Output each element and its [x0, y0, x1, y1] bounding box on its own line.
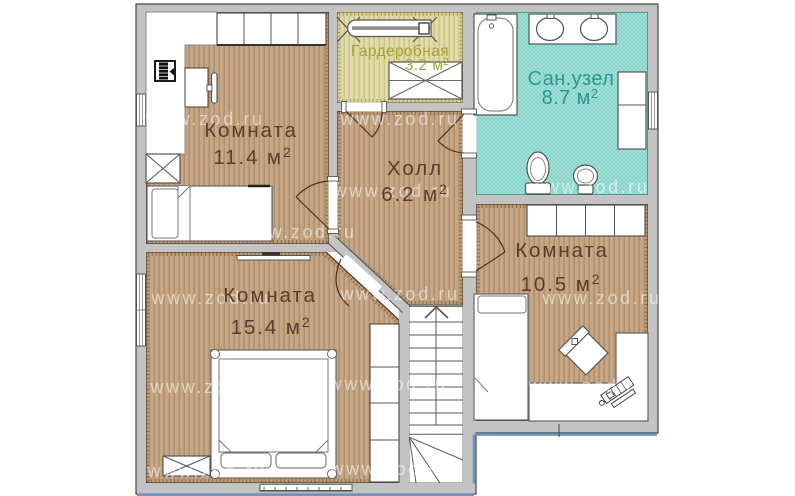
svg-text:www.zod.ru: www.zod.ru — [329, 459, 449, 479]
svg-text:Комната: Комната — [223, 284, 317, 307]
svg-text:www.zod.ru: www.zod.ru — [527, 376, 647, 396]
svg-text:www.zod.ru: www.zod.ru — [339, 284, 459, 304]
svg-text:Комната: Комната — [515, 239, 609, 262]
svg-text:6.2 м2: 6.2 м2 — [381, 181, 448, 206]
svg-text:www.zod.ru: www.zod.ru — [529, 177, 649, 197]
svg-text:www.zod.ru: www.zod.ru — [327, 374, 447, 394]
svg-text:15.4 м2: 15.4 м2 — [231, 314, 312, 339]
svg-text:Холл: Холл — [387, 157, 443, 180]
svg-text:3.2 м2: 3.2 м2 — [405, 57, 450, 74]
svg-text:11.4 м2: 11.4 м2 — [213, 144, 292, 169]
svg-text:www.zod.ru: www.zod.ru — [146, 461, 266, 481]
svg-text:Комната: Комната — [204, 119, 298, 142]
svg-text:10.5 м2: 10.5 м2 — [521, 271, 602, 296]
svg-text:www.zod.ru: www.zod.ru — [149, 377, 269, 397]
svg-text:www.zod.ru: www.zod.ru — [339, 109, 459, 129]
svg-text:8.7 м2: 8.7 м2 — [542, 86, 599, 109]
